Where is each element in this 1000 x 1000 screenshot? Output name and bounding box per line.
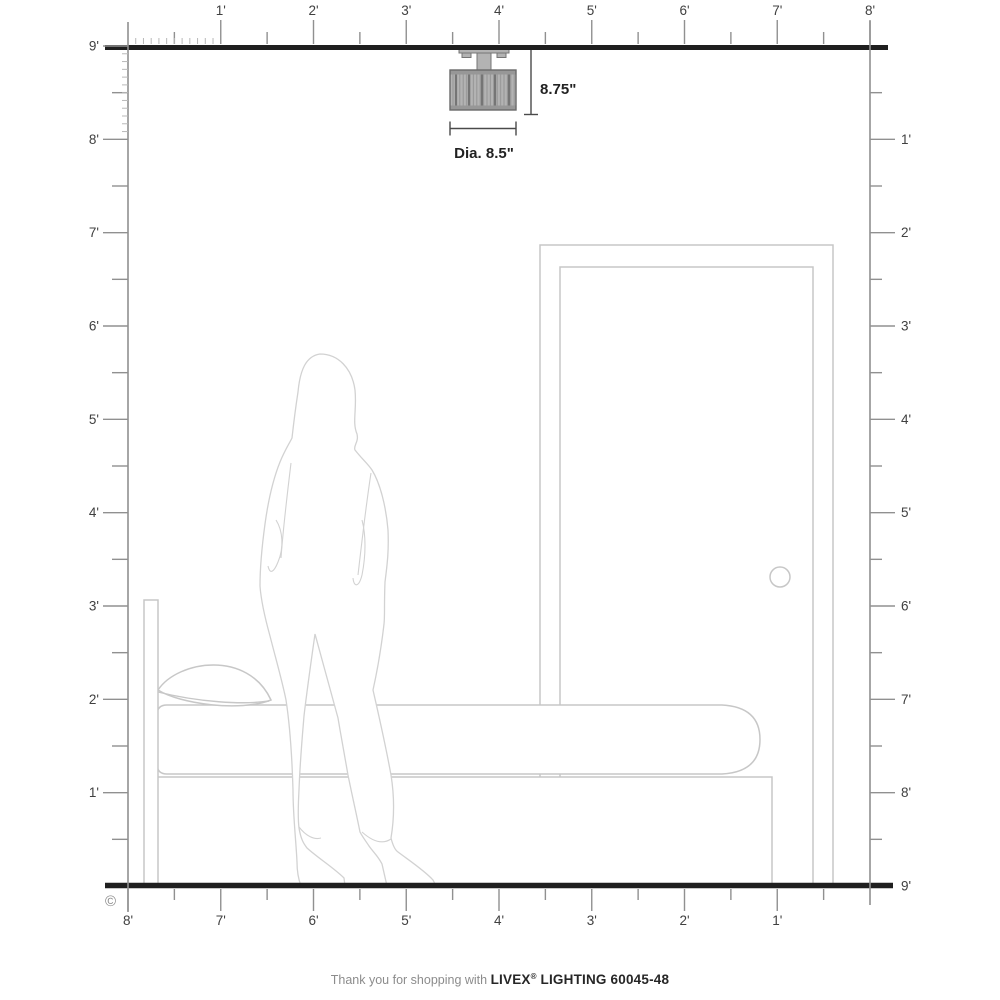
registered-mark: ® (531, 972, 537, 981)
left-ruler-label: 8' (89, 132, 99, 147)
top-ruler-label: 1' (216, 3, 226, 18)
bottom-ruler-label: 8' (123, 913, 133, 928)
bottom-ruler-label: 1' (772, 913, 782, 928)
footer: Thank you for shopping with LIVEX®LIGHTI… (0, 972, 1000, 987)
left-ruler-label: 5' (89, 412, 99, 427)
right-ruler-floor-label: 9' (901, 879, 911, 894)
footer-product: LIGHTING 60045-48 (541, 972, 670, 987)
left-ruler-label: 3' (89, 599, 99, 614)
diameter-dimension-label: Dia. 8.5" (454, 145, 514, 162)
right-ruler-label: 4' (901, 412, 911, 427)
right-ruler-label: 6' (901, 599, 911, 614)
diagram-canvas: 8.75" Dia. 8.5" 1'2'3'4'5'6'7'8' 8'7'6'5… (0, 0, 1000, 1000)
fixture-canopy-nub-left (462, 53, 471, 58)
left-ruler-label: 7' (89, 225, 99, 240)
top-ruler: 1'2'3'4'5'6'7'8' (136, 3, 875, 44)
bed-base (157, 777, 772, 884)
bottom-ruler-label: 6' (308, 913, 318, 928)
height-dimension-label: 8.75" (540, 81, 576, 98)
right-ruler-label: 3' (901, 319, 911, 334)
right-ruler-label: 1' (901, 132, 911, 147)
right-ruler-label: 2' (901, 225, 911, 240)
top-ruler-label: 4' (494, 3, 504, 18)
bottom-ruler-label: 4' (494, 913, 504, 928)
right-ruler-label: 5' (901, 505, 911, 520)
left-ruler-label: 9' (89, 39, 99, 54)
bottom-ruler-label: 7' (216, 913, 226, 928)
left-ruler-label: 6' (89, 319, 99, 334)
left-ruler: 9'8'7'6'5'4'3'2'1' (89, 39, 128, 840)
fixture-canopy-nub-right (497, 53, 506, 58)
left-ruler-label: 1' (89, 785, 99, 800)
left-ruler-label: 4' (89, 505, 99, 520)
top-ruler-label: 6' (679, 3, 689, 18)
right-ruler-label: 8' (901, 785, 911, 800)
light-fixture (450, 47, 516, 111)
mattress (157, 705, 760, 774)
left-ruler-label: 2' (89, 692, 99, 707)
top-ruler-label: 7' (772, 3, 782, 18)
footer-prefix: Thank you for shopping with (331, 973, 487, 987)
right-ruler: 1'2'3'4'5'6'7'8'9' (870, 93, 911, 894)
pillow (158, 665, 271, 706)
footer-brand: LIVEX (491, 972, 531, 987)
bottom-ruler-label: 2' (679, 913, 689, 928)
scale-diagram: 8.75" Dia. 8.5" 1'2'3'4'5'6'7'8' 8'7'6'5… (0, 0, 1000, 1000)
top-ruler-label: 2' (308, 3, 318, 18)
headboard-post (144, 600, 158, 884)
bottom-ruler-label: 5' (401, 913, 411, 928)
bottom-ruler: 8'7'6'5'4'3'2'1' (123, 889, 824, 928)
top-ruler-label: 5' (587, 3, 597, 18)
fixture-stem (477, 53, 491, 72)
top-ruler-label: 3' (401, 3, 411, 18)
right-ruler-label: 7' (901, 692, 911, 707)
door-knob (770, 567, 790, 587)
top-ruler-label: 8' (865, 3, 875, 18)
copyright-symbol: © (105, 893, 116, 910)
bottom-ruler-label: 3' (587, 913, 597, 928)
